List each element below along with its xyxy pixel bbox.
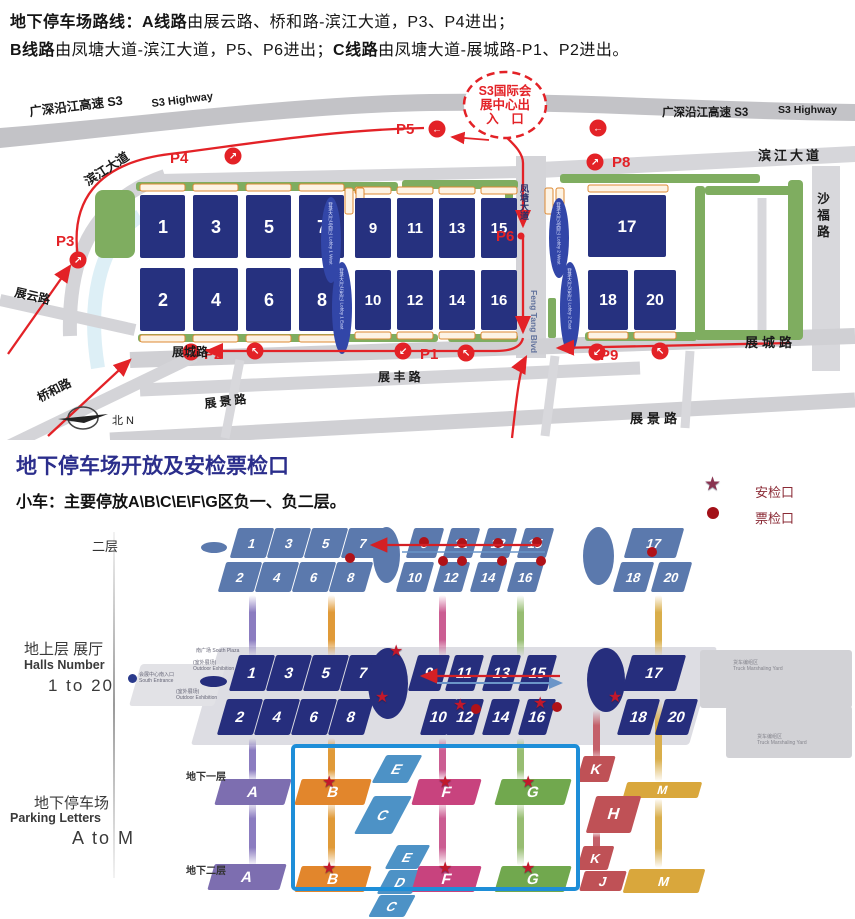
security-check-star-icon: ★ <box>608 690 622 706</box>
parking-label-en: Parking Letters <box>10 811 101 825</box>
level-connector <box>439 595 446 657</box>
parking-section-b2: M <box>623 869 706 893</box>
car-label: 小车： <box>16 494 64 511</box>
south-plaza-en: South Plaza <box>212 648 239 654</box>
truck-label-cn: 货车编组区 <box>733 660 758 666</box>
security-check-star-icon: ★ <box>521 775 535 791</box>
level-connector <box>328 595 335 657</box>
route-intro: 地下停车场路线： <box>10 14 142 31</box>
parking-entrance-label: P1 <box>420 346 438 363</box>
truck-yard-label: 货车编组区Truck Marshaling Yard <box>757 734 807 747</box>
ticket-check-dot-icon <box>493 538 503 548</box>
route-text-line1: 地下停车场路线：A线路由展云路、桥和路-滨江大道，P3、P4进出； <box>10 8 515 32</box>
ground-hall: 17 <box>622 655 686 691</box>
security-check-star-icon: ★ <box>389 644 403 660</box>
p6-dot-icon <box>518 233 525 240</box>
road-label-zhancheng: 展城路 <box>172 344 209 359</box>
parking-entrance-label: P5 <box>396 121 414 138</box>
level-connector <box>249 800 256 866</box>
s3-exit-circle: S3国际会 展中心出 入 口 <box>464 72 546 138</box>
map-hall-number: 10 <box>365 292 382 309</box>
route-arrow-icon: ↖ <box>462 349 470 360</box>
security-check-star-icon: ★ <box>375 690 389 706</box>
map-hall-number: 14 <box>449 292 466 309</box>
s3-exit-line2: 展中心出 <box>480 97 530 112</box>
map-hall-number: 13 <box>449 220 466 237</box>
route-arrow-icon: ↗ <box>229 152 237 163</box>
ticket-check-dot-icon <box>345 553 355 563</box>
roads <box>0 94 855 440</box>
road-label-binjiang: 滨江大道 <box>81 148 132 188</box>
route-arrow-icon: ← <box>593 124 603 135</box>
route-arrow-icon: ↖ <box>656 347 664 358</box>
road-label-binjiang: 滨江大道 <box>758 148 822 163</box>
entrance-en: South Entrance <box>139 678 173 684</box>
ticket-check-dot-icon <box>457 556 467 566</box>
lobby-label: 登录大厅2(西厅) Lobby 2 West <box>556 201 562 265</box>
parking-section-b1: K <box>576 756 615 782</box>
ticket-check-dot-icon <box>438 556 448 566</box>
map-hall-number: 18 <box>599 292 617 309</box>
road-label-zhanjing: 展景路 <box>630 411 681 426</box>
security-check-star-icon: ★ <box>453 698 467 714</box>
floor2-hall: 18 <box>613 562 655 592</box>
route-arrow-icon: ↖ <box>251 347 259 358</box>
security-check-star-icon: ★ <box>438 861 452 877</box>
outdoor-exhibition-label: (室外展场)Outdoor Exhibition <box>176 689 217 702</box>
map-hall-number: 5 <box>264 217 274 237</box>
parking-range-label: A to M <box>72 828 135 849</box>
route-arrow-icon: ↙ <box>399 347 407 358</box>
ground-label-cn: 地上层 展厅 <box>24 638 103 659</box>
lobby-label: 登录大厅2(东厅) Lobby 2 East <box>567 267 573 330</box>
map-hall-number: 12 <box>407 292 424 309</box>
floor2-hall: 20 <box>651 562 693 592</box>
outdoor-exhibition-label: (室外展场)Outdoor Exhibition <box>193 660 234 673</box>
outdoor-cn: (室外展场) <box>176 689 199 695</box>
ticket-check-dot-icon <box>552 702 562 712</box>
ground-oval <box>200 676 227 687</box>
site-map: 1 3 5 7 2 4 6 8 9 11 13 15 17 10 12 14 1… <box>0 68 855 440</box>
security-check-star-icon: ★ <box>322 775 336 791</box>
south-entrance-icon <box>128 674 137 683</box>
s3-exit-line3: 入 口 <box>486 112 524 126</box>
level-connector <box>517 595 524 657</box>
parking-entrance-label: P6 <box>496 228 514 245</box>
ticket-check-dot-icon <box>532 537 542 547</box>
map-hall-number: 2 <box>158 290 168 310</box>
map-hall-number: 3 <box>211 217 221 237</box>
road-label-zhancheng: 展城路 <box>745 335 796 350</box>
lobby-label: 登录大厅1(东厅) Lobby 1 East <box>339 267 345 330</box>
route-c-label: C线路 <box>333 42 378 59</box>
truck-label-en: Truck Marshaling Yard <box>757 740 807 746</box>
route-c-desc: 由凤塘大道-展城路-P1、P2进出。 <box>378 42 629 59</box>
legend-security-label: 安检口 <box>755 482 794 501</box>
outdoor-en: Outdoor Exhibition <box>176 695 217 701</box>
map-hall-number: 20 <box>646 292 664 309</box>
ticket-check-dot-icon <box>536 556 546 566</box>
road-label-fengtang: 凤塘大道 <box>519 184 529 221</box>
truck-yard-label: 货车编组区Truck Marshaling Yard <box>733 660 783 673</box>
b2-label: 地下二层 <box>186 862 226 877</box>
route-arrow-icon: ← <box>432 125 442 136</box>
outdoor-cn: (室外展场) <box>193 660 216 666</box>
parking-entrance-label: P3 <box>56 233 74 250</box>
floor2-hall: 14 <box>470 562 508 592</box>
map-hall-number: 16 <box>491 292 508 309</box>
road-label-zhanjing: 展景路 <box>204 391 251 411</box>
south-plaza-cn: 南广场 <box>196 648 211 654</box>
ground-range-label: 1 to 20 <box>48 676 114 696</box>
parking-section-b2: C <box>368 895 416 917</box>
parking-label-cn: 地下停车场 <box>34 792 109 813</box>
b1-label: 地下一层 <box>186 768 226 783</box>
parking-section-b1: H <box>586 796 642 833</box>
road-label-s3-cn: 广深沿江高速 S3 <box>662 105 748 119</box>
map-hall-number: 4 <box>211 290 221 310</box>
security-check-star-icon: ★ <box>438 775 452 791</box>
map-hall-number: 9 <box>369 220 377 237</box>
route-arrow-icon: ↗ <box>74 256 82 267</box>
route-text-line2: B线路由凤塘大道-滨江大道，P5、P6进出；C线路由凤塘大道-展城路-P1、P2… <box>10 36 629 60</box>
map-hall-number: 1 <box>158 217 168 237</box>
ticket-check-dot-icon <box>497 556 507 566</box>
outdoor-en: Outdoor Exhibition <box>193 666 234 672</box>
ticket-check-dot-icon <box>457 538 467 548</box>
entrance-cn: 会展中心南入口 <box>139 672 174 678</box>
section2-title: 地下停车场开放及安检票检口 <box>16 450 289 480</box>
parking-section-b2: K <box>577 846 615 870</box>
route-b-desc: 由凤塘大道-滨江大道，P5、P6进出； <box>55 42 333 59</box>
route-b-label: B线路 <box>10 42 55 59</box>
floor2-hall: 16 <box>507 562 545 592</box>
legend-security-star-icon: ★ <box>704 475 721 494</box>
road-label-s3-en: S3 Highway <box>778 104 837 116</box>
floor2-label: 二层 <box>92 536 118 555</box>
road-label-fengtang-en: Feng Tang Blvd <box>529 290 539 353</box>
floor2-hall: 10 <box>396 562 435 592</box>
map-halls: 1 3 5 7 2 4 6 8 9 11 13 15 17 10 12 14 1… <box>140 195 676 331</box>
security-check-star-icon: ★ <box>533 696 547 712</box>
lobby-label: 登录大厅1(西厅) Lobby 1 West <box>328 201 334 265</box>
parking-section-b2: J <box>579 871 627 891</box>
route-arrow-icon: ↗ <box>591 158 599 169</box>
map-hall-number: 6 <box>264 290 274 310</box>
route-a-desc: 由展云路、桥和路-滨江大道，P3、P4进出； <box>187 14 514 31</box>
road-label-shafu: 沙福路 <box>815 192 830 242</box>
road-label-s3-cn: 广深沿江高速 S3 <box>29 93 124 119</box>
floor2-oval <box>201 542 227 553</box>
car-text: 主要停放A\B\C\E\F\G区负一、负二层。 <box>64 494 346 511</box>
road-label-s3-en: S3 Highway <box>151 90 215 110</box>
parking-entrance-label: P9 <box>600 347 618 364</box>
ticket-check-dot-icon <box>419 537 429 547</box>
map-hall-number: 8 <box>317 290 327 310</box>
ticket-check-dot-icon <box>471 704 481 714</box>
parking-guide-infographic: 地下停车场路线：A线路由展云路、桥和路-滨江大道，P3、P4进出； B线路由凤塘… <box>0 0 855 919</box>
floor2-hall: 12 <box>433 562 471 592</box>
section2-subtitle: 小车：主要停放A\B\C\E\F\G区负一、负二层。 <box>16 488 346 512</box>
legend-ticket-dot-icon <box>707 507 719 519</box>
floor2-hall: 8 <box>329 562 374 592</box>
compass-north-label: 北 N <box>112 414 134 427</box>
level-connector <box>655 798 662 868</box>
truck-yard <box>700 650 852 708</box>
road-label-qiaohe: 桥和路 <box>35 375 75 405</box>
level-connector <box>249 738 256 782</box>
level-connector <box>249 595 256 657</box>
parking-entrance-label: P8 <box>612 154 630 171</box>
map-hall-number: 17 <box>618 217 637 236</box>
security-check-star-icon: ★ <box>521 861 535 877</box>
truck-label-en: Truck Marshaling Yard <box>733 666 783 672</box>
s3-exit-line1: S3国际会 <box>479 83 532 98</box>
level-connector <box>655 595 662 657</box>
truck-label-cn: 货车编组区 <box>757 734 782 740</box>
road-label-zhanfeng: 展 丰 路 <box>378 369 422 384</box>
level-divider-line <box>113 532 115 878</box>
floor2-lobby-oval <box>583 527 614 585</box>
parking-entrance-label: P4 <box>170 150 189 167</box>
security-check-star-icon: ★ <box>322 861 336 877</box>
ground-label-en: Halls Number <box>24 658 105 672</box>
legend-ticket-label: 票检口 <box>755 508 794 527</box>
south-entrance-label: 会展中心南入口South Entrance <box>139 672 174 685</box>
truck-yard <box>726 706 852 758</box>
map-hall-number: 11 <box>407 220 423 237</box>
south-plaza-label: 南广场 South Plaza <box>196 648 239 654</box>
ticket-check-dot-icon <box>647 547 657 557</box>
route-a-label: A线路 <box>142 14 187 31</box>
